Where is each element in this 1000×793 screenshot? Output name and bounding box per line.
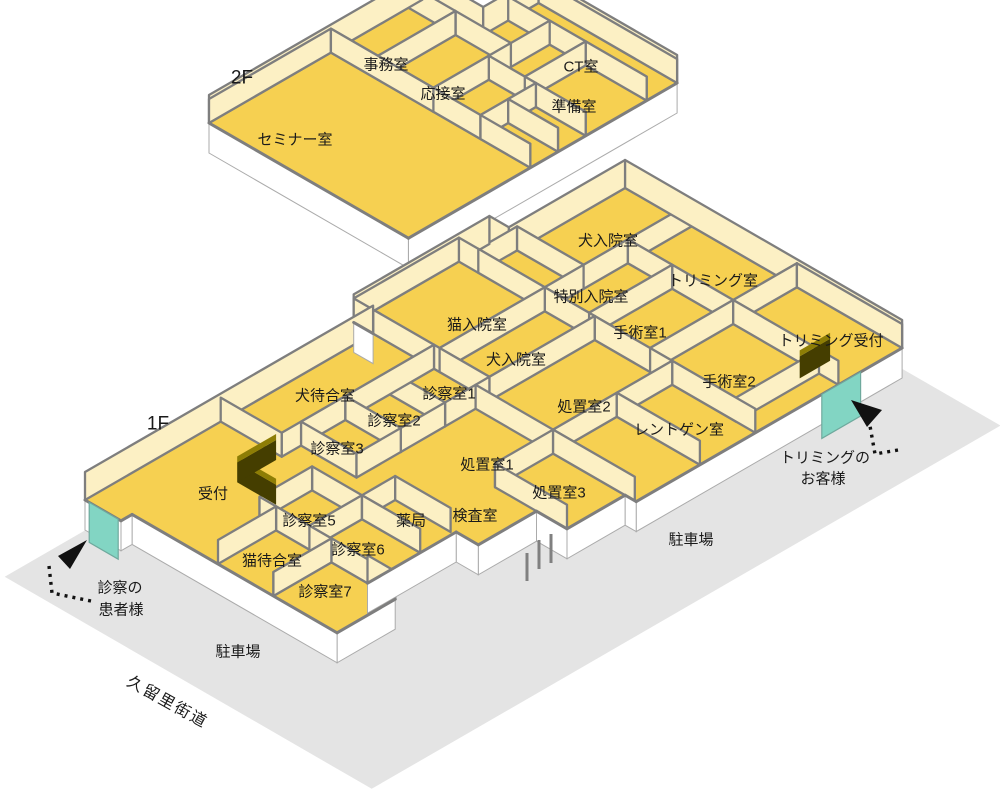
room-label: 猫待合室 bbox=[242, 554, 302, 569]
room-label: 薬局 bbox=[396, 514, 426, 529]
room-label: 事務室 bbox=[363, 58, 408, 73]
floor-tag: 1F bbox=[147, 415, 169, 434]
room-label: 犬待合室 bbox=[295, 389, 355, 404]
guide-label: 診察の bbox=[97, 581, 142, 596]
room-label: CT室 bbox=[564, 60, 599, 75]
ground-label: 駐車場 bbox=[215, 645, 260, 660]
room-label: 受付 bbox=[198, 487, 228, 502]
room-label: 猫入院室 bbox=[447, 318, 507, 333]
room-label: 診察室3 bbox=[310, 442, 363, 457]
room-label: 診察室2 bbox=[367, 414, 420, 429]
guide-label: 患者様 bbox=[98, 603, 143, 618]
room-label: トリミング室 bbox=[668, 274, 758, 289]
room-label: 処置室1 bbox=[460, 458, 513, 473]
room-label: 手術室2 bbox=[702, 375, 755, 390]
room-label: セミナー室 bbox=[257, 133, 332, 148]
room-label: 応接室 bbox=[420, 87, 465, 102]
room-label: 検査室 bbox=[452, 509, 497, 524]
room-label: 診察室1 bbox=[422, 387, 475, 402]
room-label: 犬入院室 bbox=[578, 234, 638, 249]
room-label: 準備室 bbox=[551, 100, 596, 115]
floorplan-canvas bbox=[0, 0, 1000, 793]
room-label: 診察室6 bbox=[331, 543, 384, 558]
floor-map-stage: セミナー室事務室応接室CT室準備室犬待合室猫入院室犬入院室特別入院室犬入院室トリ… bbox=[0, 0, 1000, 793]
room-label: トリミング受付 bbox=[778, 334, 883, 349]
room-label: 手術室1 bbox=[613, 326, 666, 341]
room-label: レントゲン室 bbox=[634, 423, 724, 438]
room-label: 処置室2 bbox=[557, 400, 610, 415]
guide-label: お客様 bbox=[800, 472, 845, 487]
room-label: 犬入院室 bbox=[486, 353, 546, 368]
room-label: 診察室7 bbox=[298, 585, 351, 600]
guide-label: トリミングの bbox=[780, 451, 870, 466]
room-label: 特別入院室 bbox=[553, 290, 628, 305]
floor-tag: 2F bbox=[231, 69, 253, 88]
room-label: 処置室3 bbox=[532, 486, 585, 501]
ground-label: 駐車場 bbox=[668, 533, 713, 548]
room-label: 診察室5 bbox=[282, 514, 335, 529]
